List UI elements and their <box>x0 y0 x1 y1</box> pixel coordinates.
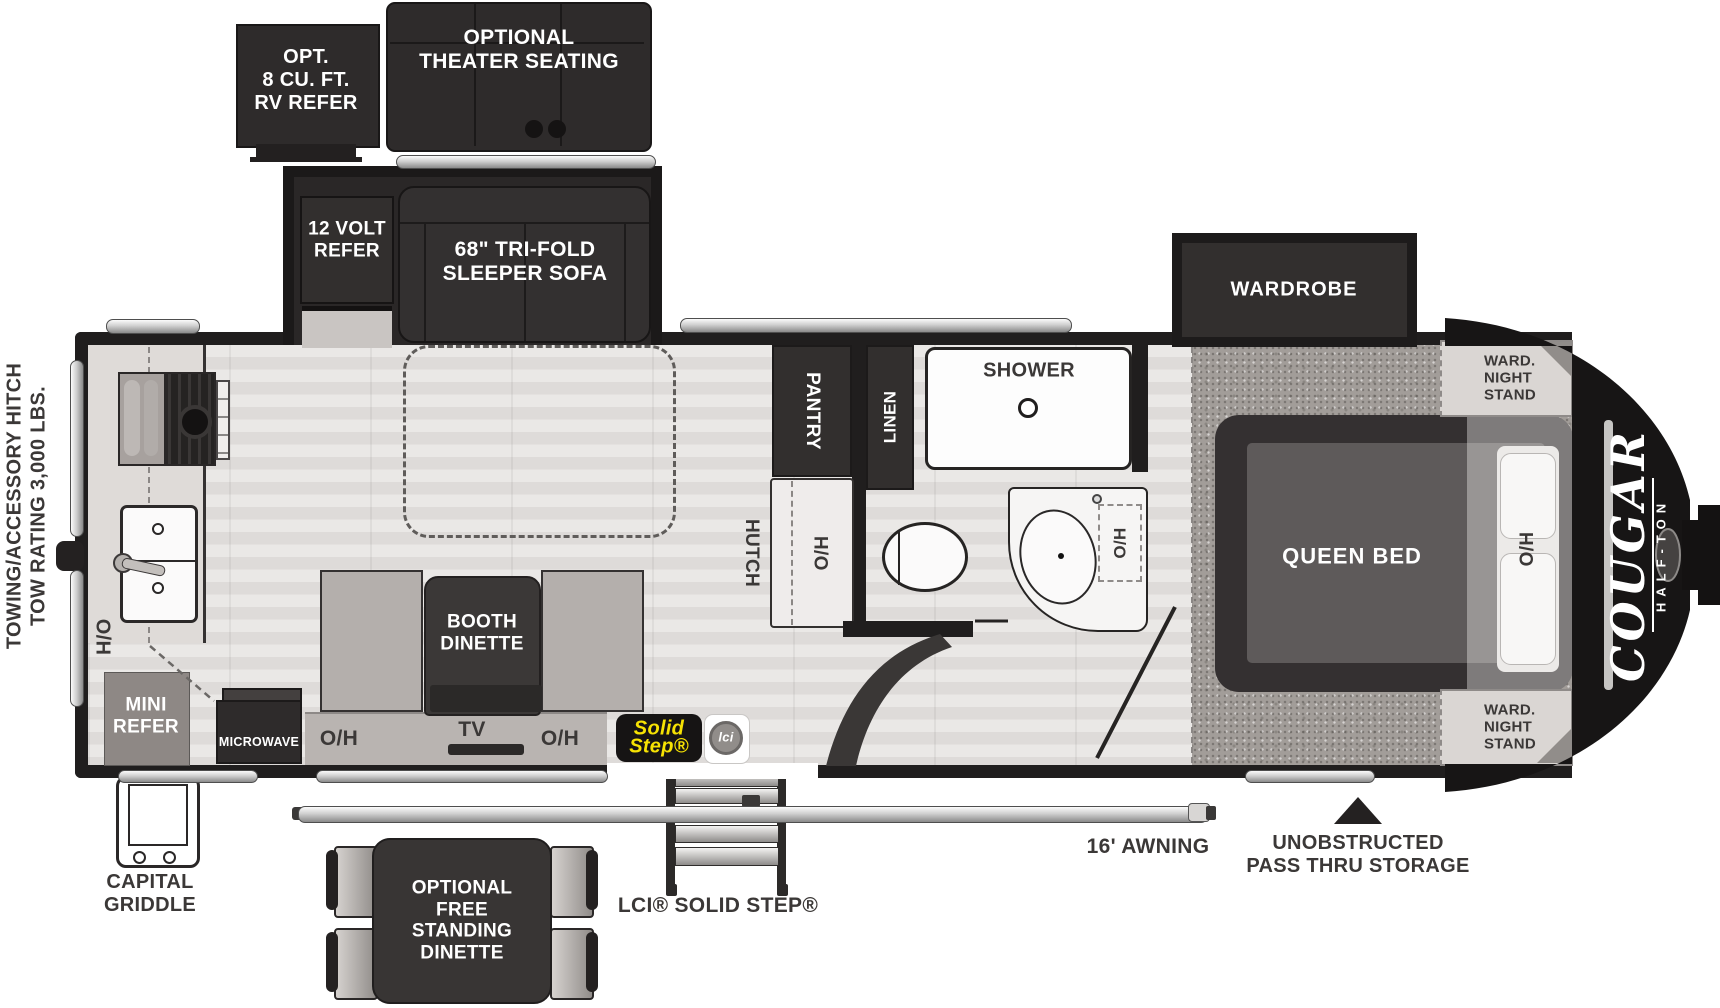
bathroom-bottom-wall <box>843 621 973 637</box>
overhead-right-label: O/H <box>541 727 579 751</box>
tow-rating-label: TOWING/ACCESSORY HITCHTOW RATING 3,000 L… <box>3 363 50 649</box>
sink-drain-icon <box>152 582 164 594</box>
tv-stand <box>448 744 524 755</box>
theater-seating-label: OPTIONALTHEATER SEATING <box>419 26 619 74</box>
sofa-seam <box>624 222 626 341</box>
toilet-tank-line <box>898 530 900 585</box>
optional-rv-refer-label: OPT.8 CU. FT.RV REFER <box>254 46 357 114</box>
optional-rv-refer-foot <box>256 144 356 157</box>
bathroom-wall-left <box>852 345 866 635</box>
vanity-faucet-icon <box>1092 494 1102 504</box>
griddle-screw-icon <box>133 851 146 864</box>
kitchen-overhead-label: O/H <box>91 619 114 655</box>
step-tread <box>675 788 779 804</box>
awning-tube <box>298 806 1208 823</box>
tv-label: TV <box>458 718 485 742</box>
queen-bed-label: QUEEN BED <box>1282 543 1422 568</box>
hutch-label: HUTCH <box>740 519 762 587</box>
capital-griddle-inner <box>128 784 188 846</box>
dinette-chair-back <box>586 850 598 910</box>
tv-screen <box>430 685 542 712</box>
theater-seating-box <box>386 2 652 152</box>
awning-end-tip <box>1206 806 1216 820</box>
hutch-overhead-label: O/H <box>812 536 834 571</box>
booth-bench-right <box>541 570 644 712</box>
pantry-label: PANTRY <box>801 372 823 450</box>
shower-drain-icon <box>1018 398 1038 418</box>
hutch-dashed-line <box>791 481 793 625</box>
nightstand-top-label: WARD.NIGHTSTAND <box>1484 352 1536 403</box>
microwave-label: MICROWAVE <box>219 735 299 749</box>
step-tread <box>675 825 779 843</box>
free-standing-dinette-label: OPTIONALFREE STANDINGDINETTE <box>412 878 513 965</box>
sofa-seam <box>424 222 426 341</box>
window-top-middle <box>680 318 1072 333</box>
bed-overhead-label: O/H <box>1517 532 1539 567</box>
window-bottom-right <box>1245 770 1375 783</box>
window-bottom-left-1 <box>118 770 258 783</box>
stove-burner-icon <box>178 405 212 439</box>
toilet <box>882 522 968 592</box>
solid-step-badge-label: SolidStep® <box>629 720 689 757</box>
mini-refer-label: MINIREFER <box>113 694 179 737</box>
window-top-left <box>106 319 200 334</box>
brand-cougar-label: COUGAR <box>1602 428 1654 682</box>
booth-dinette-label: BOOTHDINETTE <box>440 611 523 654</box>
griddle-screw-icon <box>163 851 176 864</box>
pass-thru-label: UNOBSTRUCTEDPASS THRU STORAGE <box>1246 832 1469 878</box>
booth-bench-left <box>320 570 423 712</box>
entry-doorway-gap <box>607 763 818 779</box>
window-left-lower <box>70 570 84 707</box>
stove-griddle-pad <box>144 380 158 456</box>
optional-rv-refer-base <box>250 157 362 162</box>
stove-side-rack <box>216 380 230 460</box>
brand-halfton-label: HALF-TON <box>1655 498 1670 612</box>
rv-floorplan: OPT.8 CU. FT.RV REFER OPTIONALTHEATER SE… <box>0 0 1720 1008</box>
rear-hitch-receiver <box>56 541 84 571</box>
lci-solid-step-label: LCI® SOLID STEP® <box>618 894 818 918</box>
vanity-drain-icon <box>1058 553 1064 559</box>
overhead-left-label: O/H <box>320 727 358 751</box>
sink-overhead-label: O/H <box>1110 527 1129 558</box>
sofa-bed-footprint-dashed <box>403 345 676 538</box>
pillow <box>1500 553 1556 665</box>
linen-label: LINEN <box>880 391 899 444</box>
kingpin-box <box>1698 505 1720 605</box>
wardrobe-label: WARDROBE <box>1231 279 1358 302</box>
dinette-chair-back <box>586 932 598 992</box>
microwave-box <box>216 700 302 764</box>
shower-label: SHOWER <box>983 360 1075 383</box>
kingpin-neck <box>1682 520 1700 590</box>
cupholder-icon <box>525 120 543 138</box>
awning-label: 16' AWNING <box>1087 835 1210 859</box>
pass-thru-arrow-icon <box>1334 797 1382 824</box>
bathroom-wall-right <box>1132 345 1148 472</box>
cupholder-icon <box>548 120 566 138</box>
window-bottom-left-2 <box>316 770 608 783</box>
entry-steps-rail-left <box>666 768 675 886</box>
twelve-volt-refer-label: 12 VOLTREFER <box>308 218 386 261</box>
window-above-sofa-slide <box>396 155 656 169</box>
dinette-chair-back <box>326 932 338 992</box>
carpet-edge-dashed-line <box>1191 347 1193 763</box>
pillow <box>1500 453 1556 539</box>
sleeper-sofa-label: 68" TRI-FOLDSLEEPER SOFA <box>443 238 608 286</box>
dinette-chair-back <box>326 850 338 910</box>
window-left-upper <box>70 360 84 537</box>
lci-badge-label: lci <box>718 731 733 746</box>
sink-drain-icon <box>152 523 164 535</box>
step-tread <box>675 847 779 866</box>
capital-griddle-label: CAPITALGRIDDLE <box>104 871 196 917</box>
refer-front-panel <box>302 306 392 348</box>
stove-griddle-pad <box>124 380 140 456</box>
nightstand-bottom-label: WARD.NIGHTSTAND <box>1484 701 1536 752</box>
